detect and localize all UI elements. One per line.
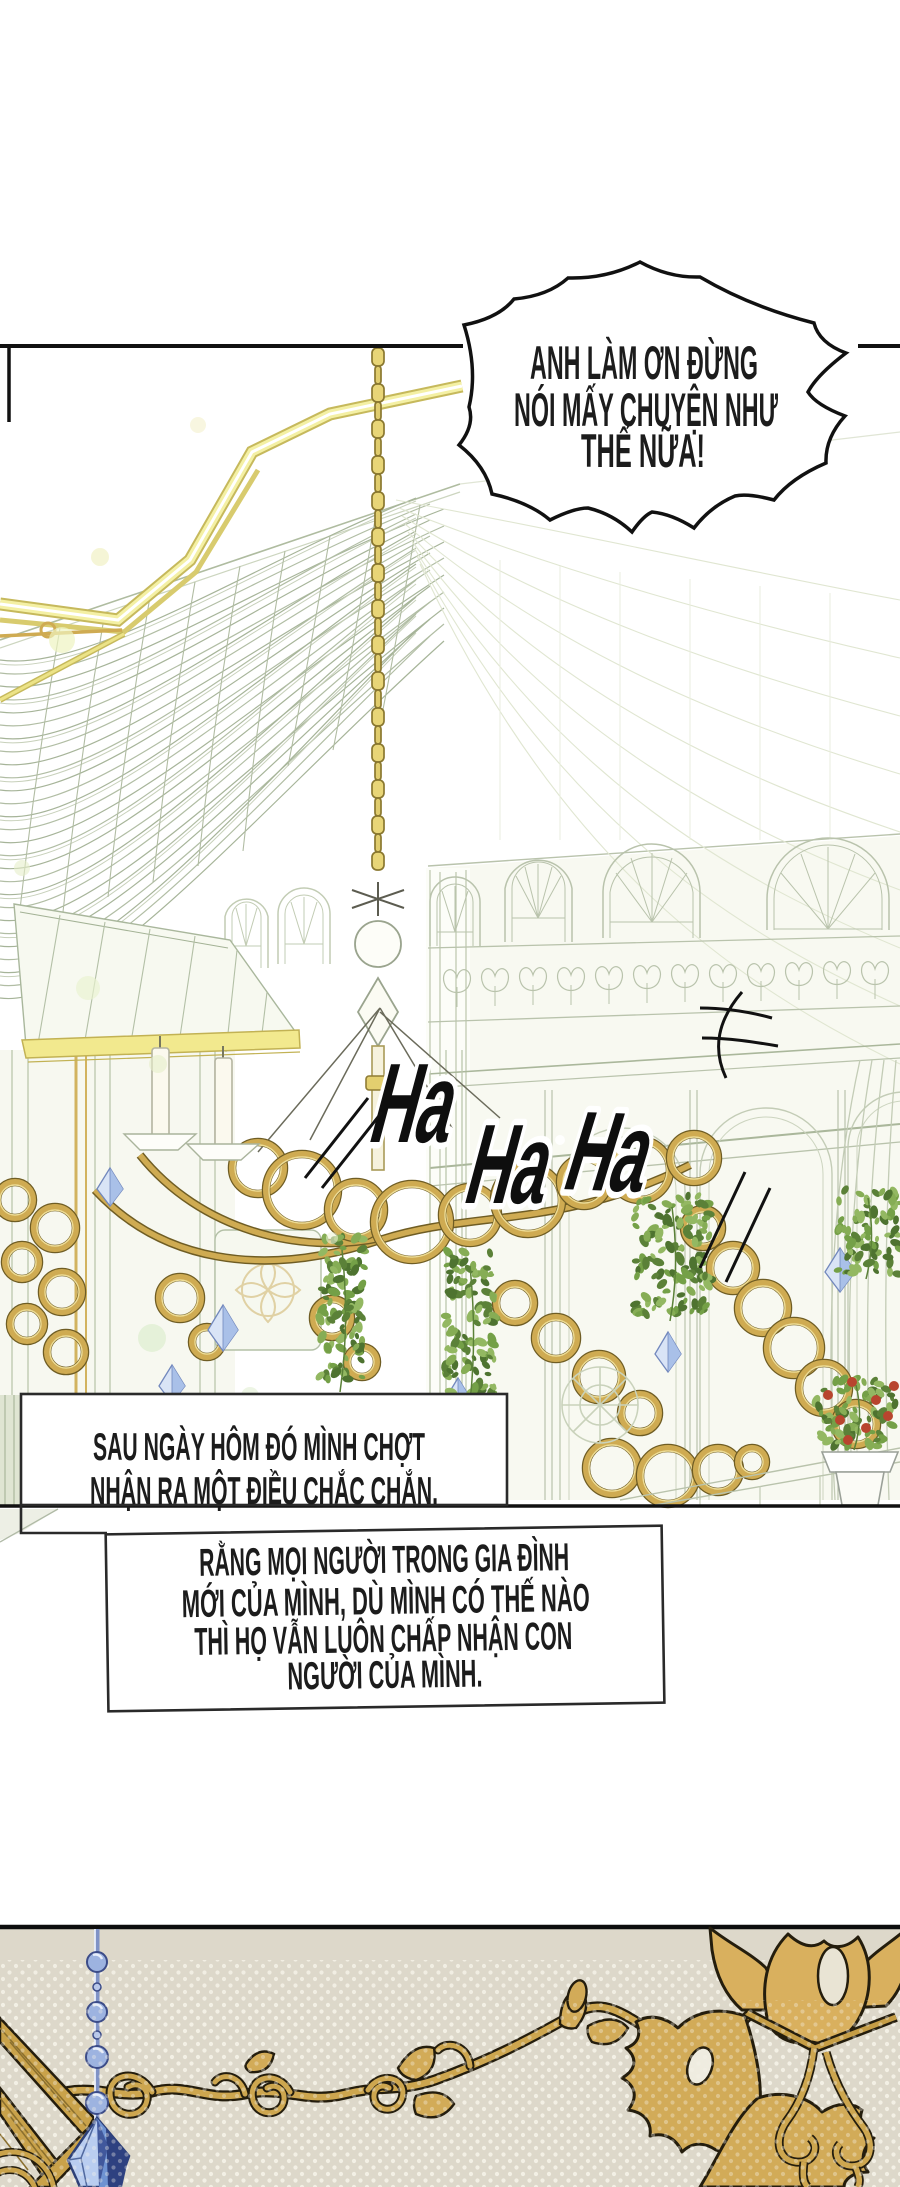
svg-text:NGƯỜI CỦA MÌNH.: NGƯỜI CỦA MÌNH. [287, 1651, 483, 1698]
svg-text:ANH LÀM ƠN ĐỪNG: ANH LÀM ƠN ĐỪNG [530, 336, 758, 389]
svg-text:NHẬN RA MỘT ĐIỀU CHẮC CHẮN.: NHẬN RA MỘT ĐIỀU CHẮC CHẮN. [90, 1468, 438, 1513]
svg-text:THẾ NỮA!: THẾ NỮA! [581, 424, 705, 477]
svg-text:SAU NGÀY HÔM ĐÓ MÌNH CHỢT: SAU NGÀY HÔM ĐÓ MÌNH CHỢT [93, 1424, 425, 1469]
